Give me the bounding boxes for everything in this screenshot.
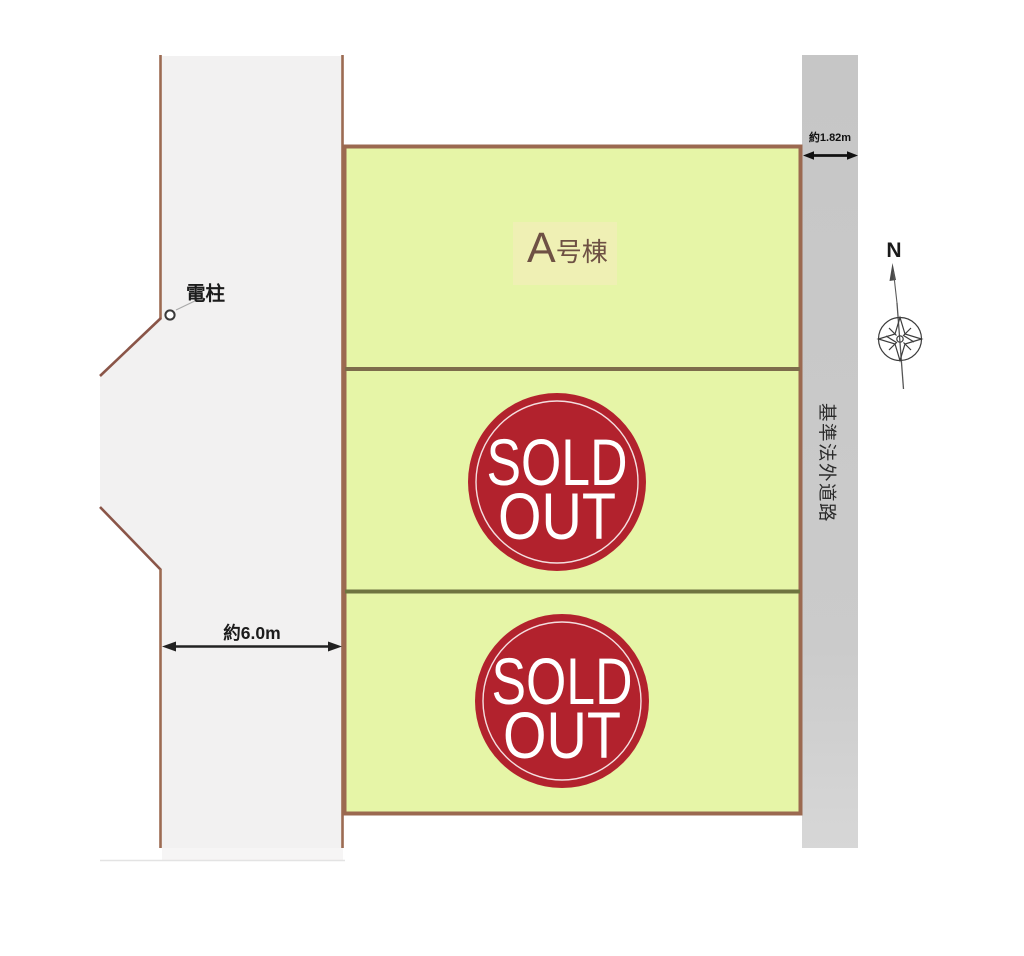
svg-text:約6.0m: 約6.0m (223, 623, 280, 643)
svg-text:電柱: 電柱 (186, 282, 226, 305)
svg-text:約1.82m: 約1.82m (809, 130, 851, 144)
svg-text:N: N (886, 239, 901, 262)
svg-text:OUT: OUT (498, 479, 616, 553)
svg-text:基準法外道路: 基準法外道路 (817, 403, 838, 523)
svg-text:OUT: OUT (503, 698, 621, 772)
